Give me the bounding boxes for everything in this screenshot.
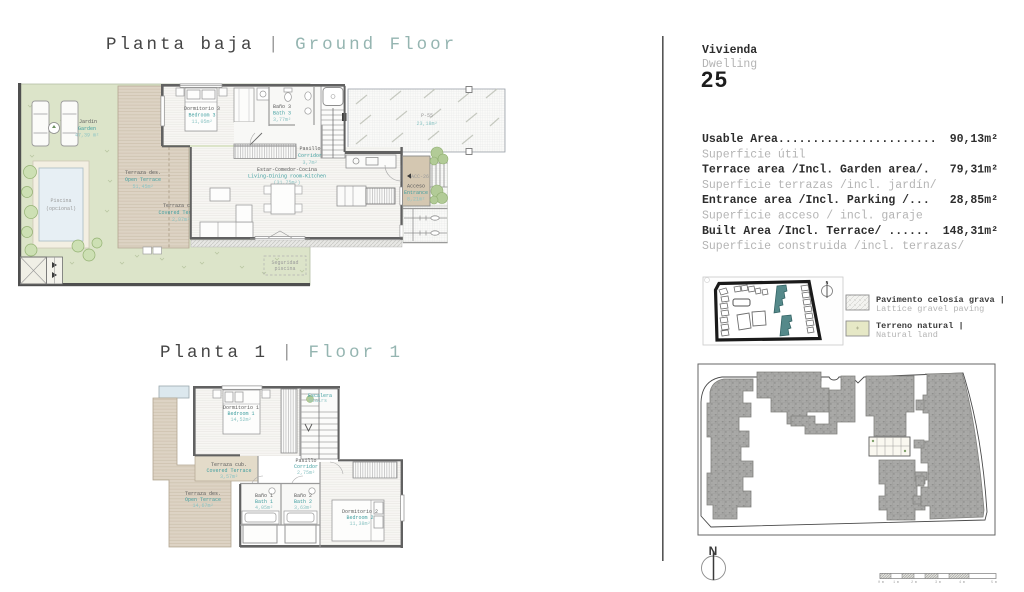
svg-text:79,31m²: 79,31m²: [950, 164, 998, 177]
svg-text:23,18m²: 23,18m²: [416, 121, 437, 127]
svg-text:ACC-26: ACC-26: [411, 174, 429, 180]
svg-text:Corridor: Corridor: [298, 153, 322, 159]
svg-text:47,39 m²: 47,39 m²: [75, 133, 99, 139]
svg-text:Superficie acceso / incl. gara: Superficie acceso / incl. garaje: [702, 210, 923, 223]
svg-text:3,7m²: 3,7m²: [302, 160, 317, 166]
svg-text:Dormitorio 3: Dormitorio 3: [184, 106, 220, 112]
svg-text:148,31m²: 148,31m²: [943, 225, 998, 238]
svg-text:3 m: 3 m: [935, 580, 941, 584]
svg-text:Built Area /Incl. Terrace/ ...: Built Area /Incl. Terrace/ ......: [702, 225, 930, 238]
svg-text:Piscina: Piscina: [50, 198, 71, 204]
svg-text:Usable Area...................: Usable Area.......................: [702, 133, 937, 146]
svg-text:Natural land: Natural land: [876, 330, 938, 340]
svg-text:25: 25: [701, 67, 728, 92]
svg-text:4,05m²: 4,05m²: [255, 505, 273, 511]
svg-text:Terraza des.: Terraza des.: [125, 170, 161, 176]
svg-text:3,63m²: 3,63m²: [294, 505, 312, 511]
svg-text:Entrance area /Incl. Parking /: Entrance area /Incl. Parking /...: [702, 194, 930, 207]
svg-text:2,75m²: 2,75m²: [297, 470, 315, 476]
svg-text:90,13m²: 90,13m²: [950, 133, 998, 146]
svg-text:Superficie útil: Superficie útil: [702, 148, 806, 161]
svg-text:Baño 3: Baño 3: [273, 104, 291, 110]
svg-text:Planta 1 | Floor 1: Planta 1 | Floor 1: [160, 343, 403, 363]
svg-text:Garden: Garden: [78, 126, 96, 132]
svg-text:2 m: 2 m: [911, 580, 917, 584]
svg-text:1 m: 1 m: [893, 580, 899, 584]
svg-text:51,45m²: 51,45m²: [132, 184, 153, 190]
svg-text:Superficie construida /incl. t: Superficie construida /incl. terrazas/: [702, 240, 964, 253]
svg-text:Stairs: Stairs: [309, 398, 327, 404]
svg-text:Open Terrace: Open Terrace: [125, 177, 161, 183]
svg-text:8,21m²: 8,21m²: [407, 197, 425, 203]
svg-text:14,67m²: 14,67m²: [192, 503, 213, 509]
svg-text:Bedroom 3: Bedroom 3: [188, 113, 215, 119]
svg-text:Lattice gravel paving: Lattice gravel paving: [876, 304, 984, 314]
svg-text:Planta baja | Ground Floor: Planta baja | Ground Floor: [106, 35, 457, 55]
svg-text:28,85m²: 28,85m²: [950, 194, 998, 207]
svg-text:N: N: [826, 280, 829, 286]
svg-text:5 m: 5 m: [991, 580, 997, 584]
svg-text:Entrance: Entrance: [404, 190, 428, 196]
svg-text:Terrace area /Incl. Garden are: Terrace area /Incl. Garden area/.: [702, 164, 930, 177]
svg-text:11,38m²: 11,38m²: [349, 521, 370, 527]
svg-text:Acceso: Acceso: [407, 184, 425, 190]
svg-text:14,52m²: 14,52m²: [230, 417, 251, 423]
svg-text:Bath 3: Bath 3: [273, 111, 291, 117]
svg-text:11,05m²: 11,05m²: [191, 119, 212, 125]
svg-text:Vivienda: Vivienda: [702, 44, 757, 57]
svg-text:4 m: 4 m: [959, 580, 965, 584]
svg-text:piscina: piscina: [274, 266, 295, 272]
svg-text:Jardín: Jardín: [79, 119, 97, 125]
svg-text:Estar-Comedor-Cocina: Estar-Comedor-Cocina: [257, 167, 317, 173]
svg-text:0 m: 0 m: [878, 580, 884, 584]
svg-text:3,57m²: 3,57m²: [220, 474, 238, 480]
svg-text:Pasillo: Pasillo: [299, 146, 320, 152]
svg-text:2,97m²: 2,97m²: [172, 217, 190, 223]
svg-text:Living-Dining room-Kitchen: Living-Dining room-Kitchen: [248, 174, 326, 180]
svg-text:P-55: P-55: [421, 113, 433, 119]
svg-text:Superficie terrazas /incl. jar: Superficie terrazas /incl. jardín/: [702, 179, 937, 192]
svg-text:3,77m²: 3,77m²: [273, 117, 291, 123]
svg-text:(opcional): (opcional): [46, 206, 76, 212]
